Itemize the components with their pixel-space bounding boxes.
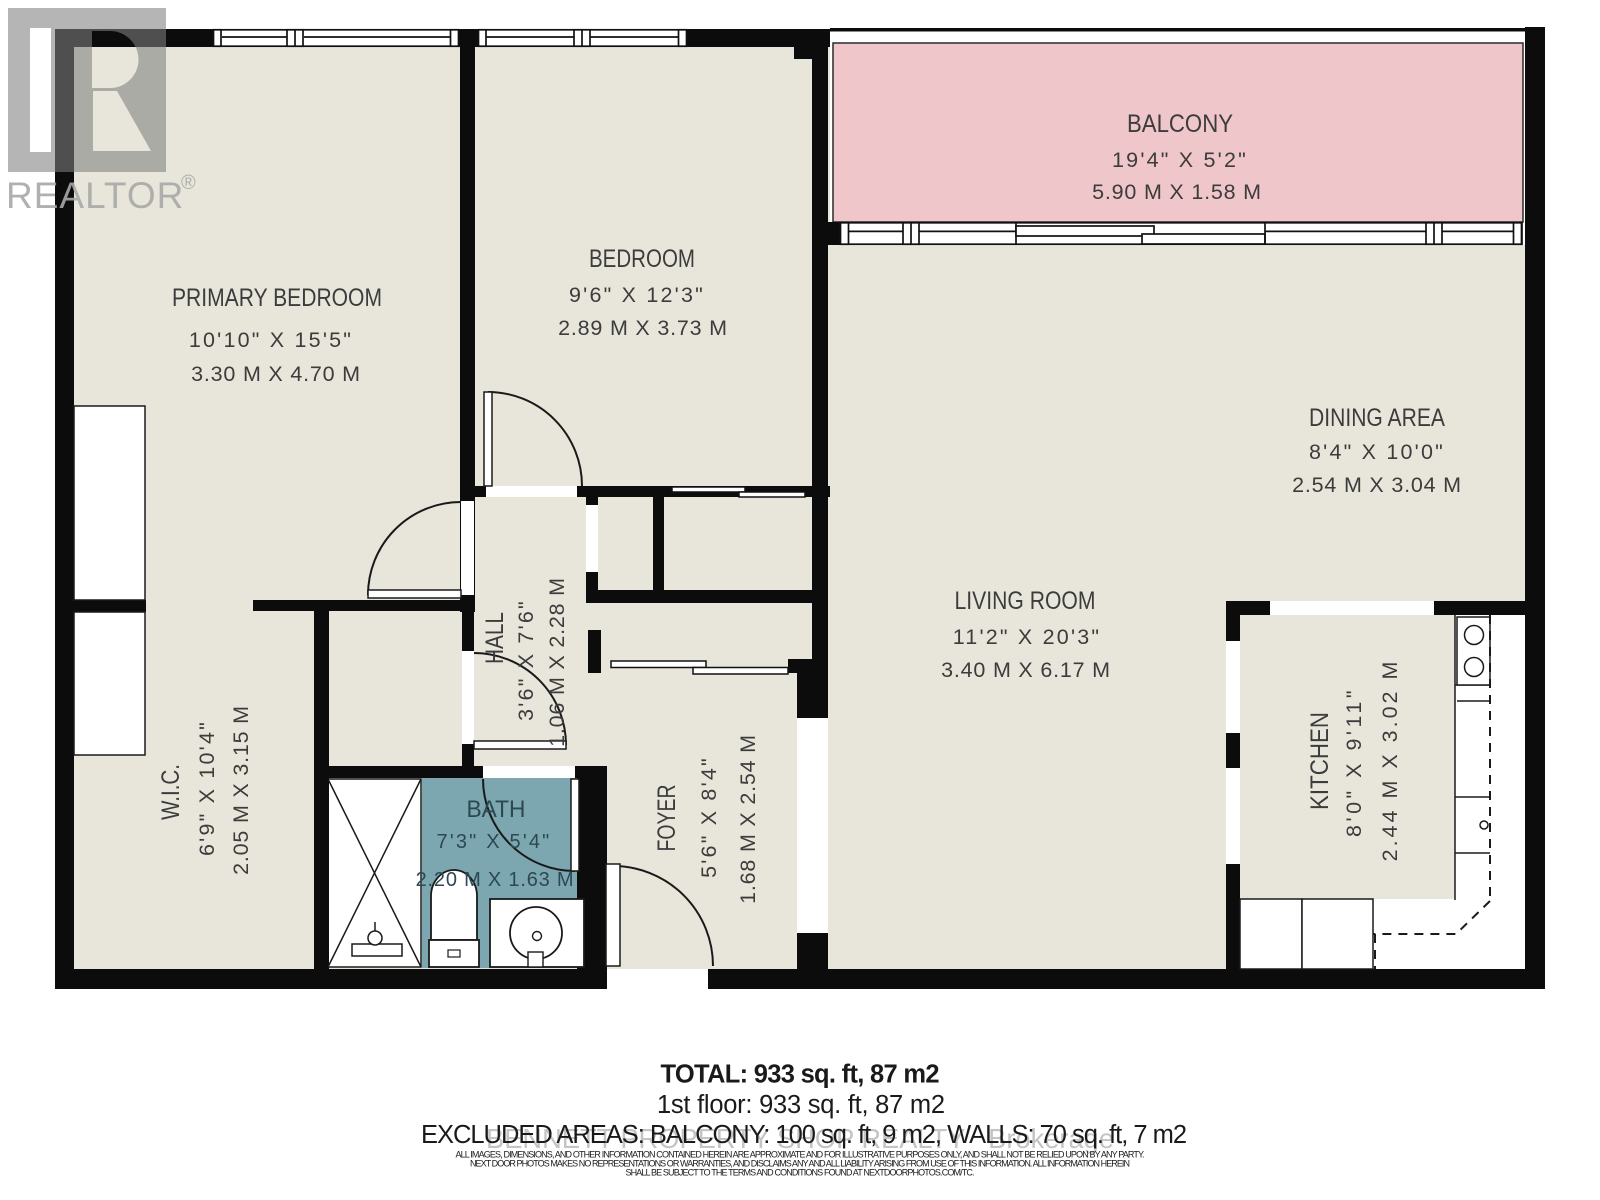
svg-text:8'0" X 9'11": 8'0" X 9'11" <box>1342 687 1366 837</box>
svg-text:HALL: HALL <box>481 612 509 664</box>
svg-text:1st floor: 933 sq. ft, 87 m2: 1st floor: 933 sq. ft, 87 m2 <box>657 1091 945 1119</box>
svg-text:2.05 M X 3.15 M: 2.05 M X 3.15 M <box>229 705 253 875</box>
svg-text:6'9" X 10'4": 6'9" X 10'4" <box>195 720 219 856</box>
svg-text:19'4" X 5'2": 19'4" X 5'2" <box>1112 148 1248 172</box>
svg-text:11'2" X 20'3": 11'2" X 20'3" <box>953 625 1102 649</box>
svg-text:PRIMARY BEDROOM: PRIMARY BEDROOM <box>172 284 382 312</box>
svg-text:9'6" X 12'3": 9'6" X 12'3" <box>569 283 705 307</box>
svg-text:1.06 M X 2.28 M: 1.06 M X 2.28 M <box>545 577 569 747</box>
svg-text:2.89 M X 3.73 M: 2.89 M X 3.73 M <box>558 316 728 340</box>
svg-text:3'6" X 7'6": 3'6" X 7'6" <box>514 599 538 721</box>
svg-text:2.20 M X 1.63 M: 2.20 M X 1.63 M <box>416 869 575 891</box>
svg-text:3.40 M X 6.17 M: 3.40 M X 6.17 M <box>941 658 1111 682</box>
svg-text:W.I.C.: W.I.C. <box>157 764 185 820</box>
svg-text:7'3" X 5'4": 7'3" X 5'4" <box>437 831 552 853</box>
svg-text:SHALL BE SUBJECT TO THE TERMS: SHALL BE SUBJECT TO THE TERMS AND CONDIT… <box>626 1168 975 1178</box>
svg-text:5'6" X 8'4": 5'6" X 8'4" <box>697 756 721 878</box>
svg-text:®: ® <box>181 172 196 194</box>
svg-text:REALTOR: REALTOR <box>6 175 184 216</box>
svg-text:2.44 M X 3.02 M: 2.44 M X 3.02 M <box>1378 659 1402 862</box>
svg-text:8'4" X 10'0": 8'4" X 10'0" <box>1309 440 1445 464</box>
svg-text:DINING AREA: DINING AREA <box>1309 404 1445 432</box>
svg-text:10'10" X 15'5": 10'10" X 15'5" <box>189 328 353 352</box>
svg-text:FOYER: FOYER <box>653 785 681 852</box>
svg-text:3.30 M X 4.70 M: 3.30 M X 4.70 M <box>191 362 361 386</box>
svg-text:BATH: BATH <box>467 796 526 823</box>
svg-text:BALCONY: BALCONY <box>1127 110 1233 138</box>
svg-text:BEDROOM: BEDROOM <box>589 245 695 273</box>
svg-text:1.68 M X 2.54 M: 1.68 M X 2.54 M <box>736 734 760 904</box>
svg-text:LIVING ROOM: LIVING ROOM <box>955 587 1096 615</box>
svg-text:2.54 M X 3.04 M: 2.54 M X 3.04 M <box>1292 473 1462 497</box>
svg-text:EXCLUDED AREAS: BALCONY: 100 s: EXCLUDED AREAS: BALCONY: 100 sq. ft, 9 m… <box>421 1121 1187 1149</box>
svg-text:KITCHEN: KITCHEN <box>1306 712 1334 810</box>
svg-text:TOTAL: 933 sq. ft, 87 m2: TOTAL: 933 sq. ft, 87 m2 <box>661 1061 940 1089</box>
svg-text:5.90 M X 1.58 M: 5.90 M X 1.58 M <box>1092 180 1262 204</box>
